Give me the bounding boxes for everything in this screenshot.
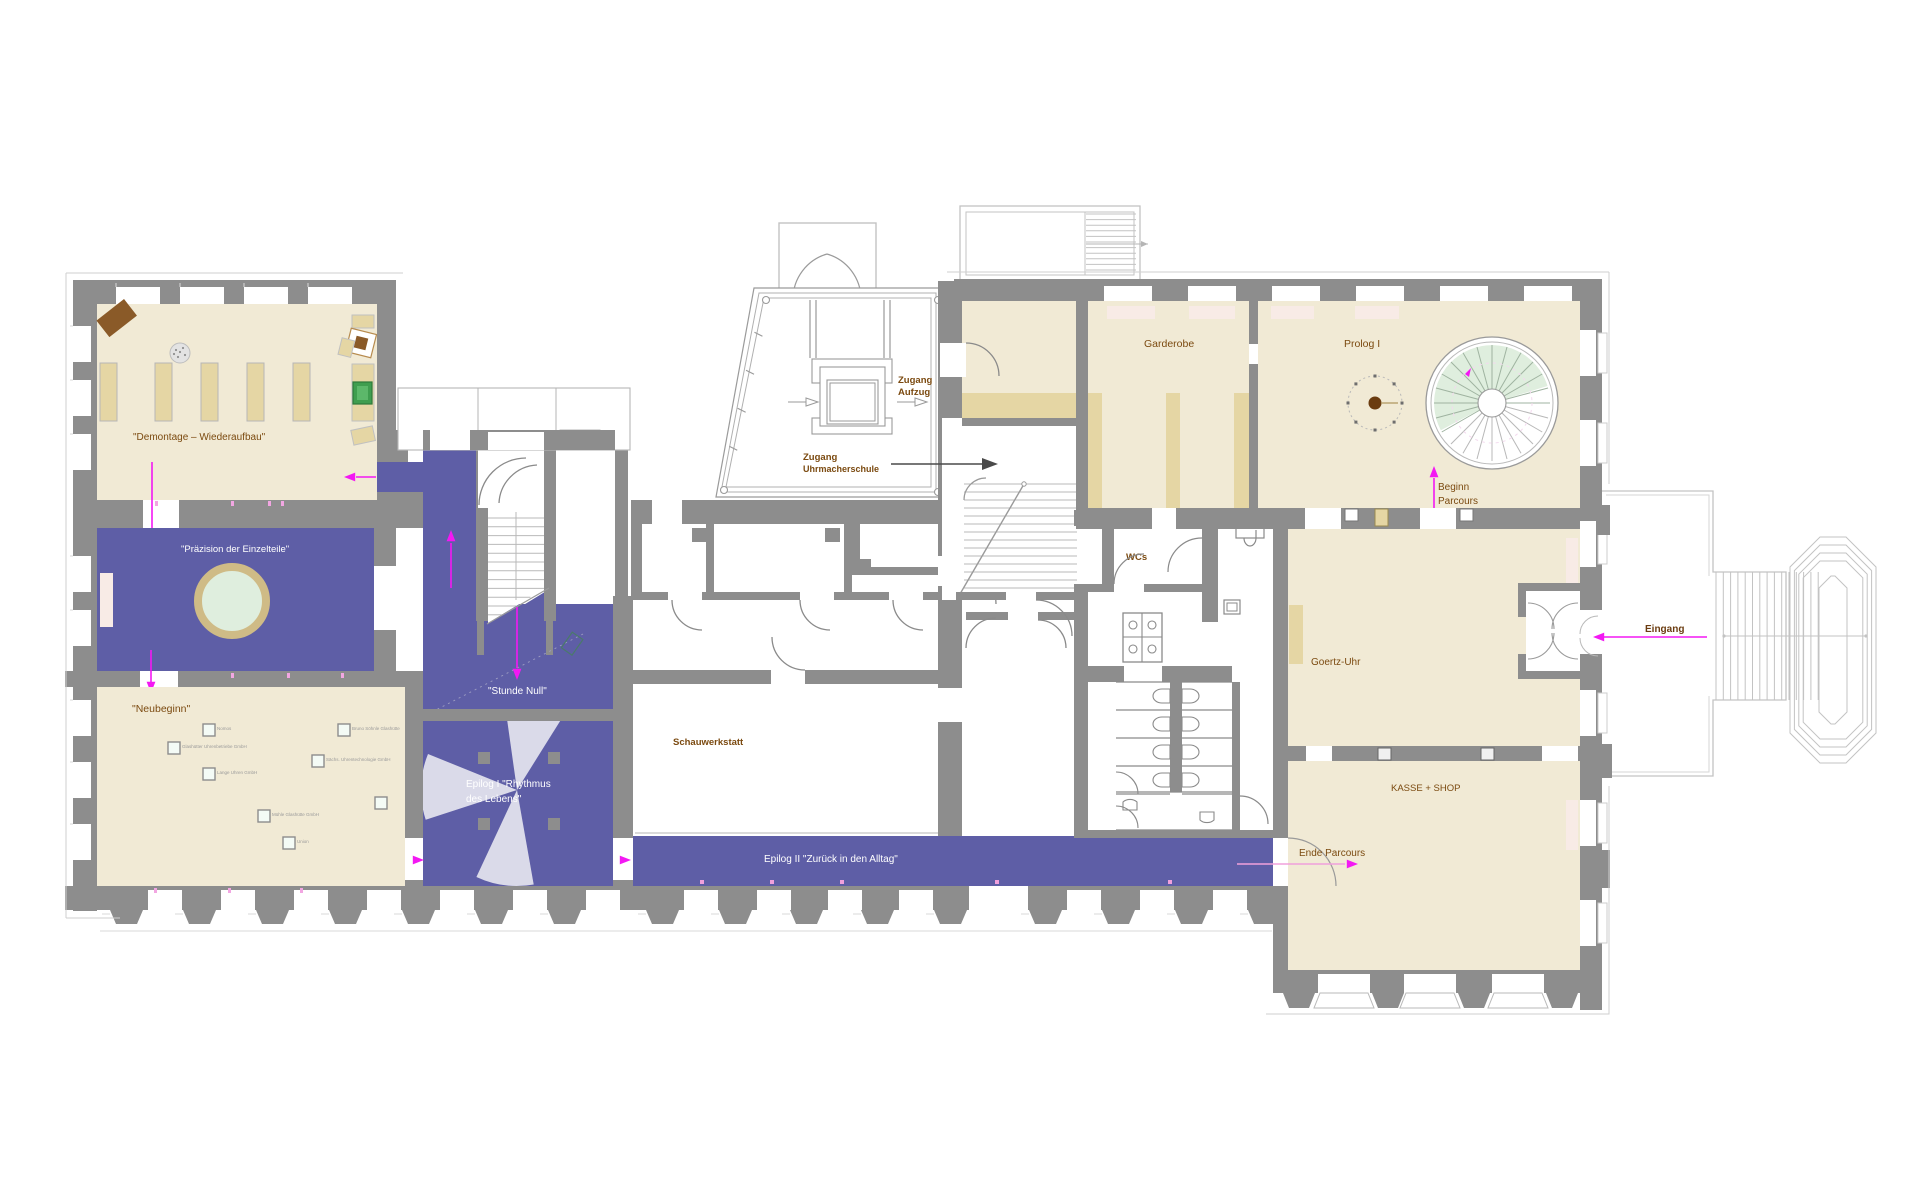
svg-text:"Stunde Null": "Stunde Null" bbox=[488, 686, 547, 697]
svg-text:Uhrmacherschule: Uhrmacherschule bbox=[803, 464, 879, 474]
svg-text:Beginn: Beginn bbox=[1438, 482, 1469, 493]
svg-text:Schauwerkstatt: Schauwerkstatt bbox=[673, 737, 744, 748]
svg-text:Parcours: Parcours bbox=[1438, 496, 1478, 507]
svg-text:Ende Parcours: Ende Parcours bbox=[1299, 848, 1365, 859]
svg-text:Goertz-Uhr: Goertz-Uhr bbox=[1311, 657, 1361, 668]
svg-text:"Neubeginn": "Neubeginn" bbox=[132, 703, 191, 715]
svg-text:Epilog II "Zurück in den Allta: Epilog II "Zurück in den Alltag" bbox=[764, 854, 898, 865]
svg-text:KASSE + SHOP: KASSE + SHOP bbox=[1391, 783, 1460, 794]
svg-text:Nomos: Nomos bbox=[217, 726, 232, 731]
svg-text:Eingang: Eingang bbox=[1645, 624, 1684, 635]
svg-text:Union: Union bbox=[297, 839, 309, 844]
svg-text:Glashütter Uhrenbetriebe GmbH: Glashütter Uhrenbetriebe GmbH bbox=[182, 744, 247, 749]
svg-text:Bruno Söhnle Glashütte: Bruno Söhnle Glashütte bbox=[352, 726, 400, 731]
svg-text:Garderobe: Garderobe bbox=[1144, 338, 1194, 350]
svg-text:"Präzision der Einzelteile": "Präzision der Einzelteile" bbox=[181, 544, 289, 555]
svg-text:Lange Uhren GmbH: Lange Uhren GmbH bbox=[217, 770, 257, 775]
svg-text:Aufzug: Aufzug bbox=[898, 387, 930, 398]
svg-text:des Lebens": des Lebens" bbox=[466, 794, 522, 805]
svg-text:Prolog I: Prolog I bbox=[1344, 338, 1380, 350]
svg-text:Sächs. Uhrentechnologie GmbH: Sächs. Uhrentechnologie GmbH bbox=[326, 757, 391, 762]
svg-text:Zugang: Zugang bbox=[803, 452, 837, 463]
svg-text:Zugang: Zugang bbox=[898, 375, 932, 386]
svg-text:Mühle Glashütte GmbH: Mühle Glashütte GmbH bbox=[272, 812, 319, 817]
svg-text:Epilog I "Rhythmus: Epilog I "Rhythmus bbox=[466, 779, 551, 790]
svg-text:"Demontage – Wiederaufbau": "Demontage – Wiederaufbau" bbox=[133, 432, 266, 443]
